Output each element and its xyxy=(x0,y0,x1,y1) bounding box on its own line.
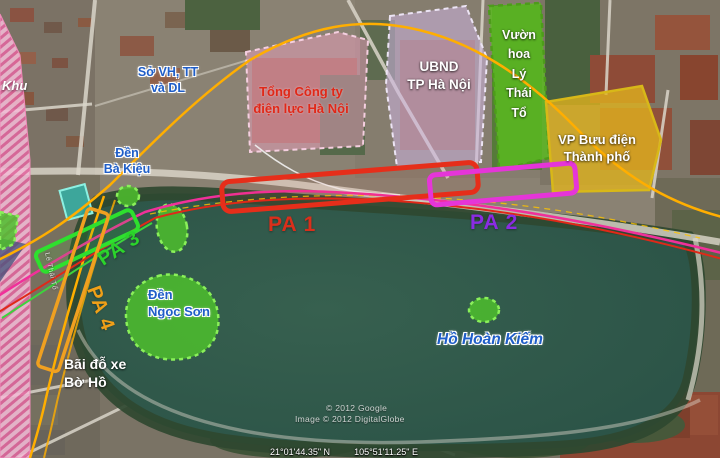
annotated-satellite-map: Khu Sở VH, TT và DL Đền Bà Kiệu Tổng Côn… xyxy=(0,0,720,458)
den-ngoc-son-label: Đền Ngọc Sơn xyxy=(148,287,210,321)
bai-do-xe-label: Bãi đỗ xe Bờ Hồ xyxy=(64,355,126,391)
thap-rua-island xyxy=(469,298,499,322)
tong-cong-ty-label: Tổng Công ty điện lực Hà Nội xyxy=(240,84,362,118)
digitalglobe-watermark: Image © 2012 DigitalGlobe xyxy=(295,414,405,424)
so-vh-tt-label: Sở VH, TT và DL xyxy=(130,64,206,97)
pa1-label: PA 1 xyxy=(268,213,316,237)
google-watermark: © 2012 Google xyxy=(326,403,387,413)
longitude-value: 105°51'11.25" E xyxy=(354,447,418,457)
pa2-label: PA 2 xyxy=(470,211,518,235)
vuon-hoa-label: Vườn hoa Lý Thái Tổ xyxy=(492,26,546,123)
vp-buu-dien-label: VP Bưu điện Thành phố xyxy=(544,132,650,166)
den-ba-kieu-label: Đền Bà Kiệu xyxy=(94,145,160,178)
lake-name-label: Hồ Hoàn Kiếm xyxy=(437,330,543,350)
ubnd-label: UBND TP Hà Nội xyxy=(394,58,484,93)
coordinate-readout: 21°01'44.35" N 105°51'11.25" E xyxy=(270,447,418,457)
district-label: Khu xyxy=(2,78,27,93)
latitude-value: 21°01'44.35" N xyxy=(270,447,330,457)
